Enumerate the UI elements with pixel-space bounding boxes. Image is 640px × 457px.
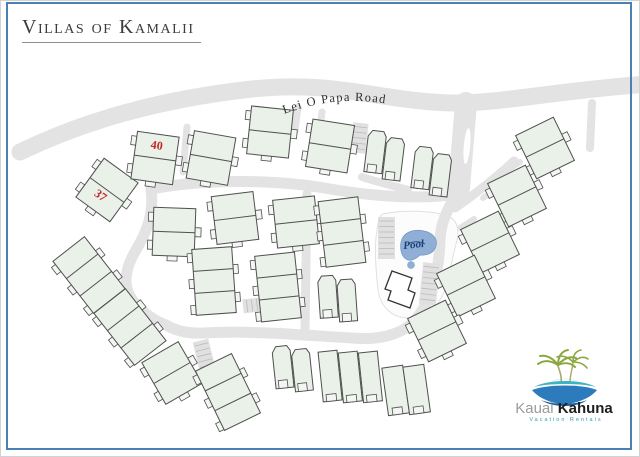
brand-tagline: Vacation Rentals xyxy=(529,417,602,423)
pool-spa xyxy=(408,262,415,269)
building xyxy=(268,195,326,253)
page-title: Villas of Kamalii xyxy=(22,16,201,43)
parking-stalls xyxy=(378,217,395,259)
building xyxy=(410,146,452,197)
kauai-kahuna-logo: Kauai Kahuna Vacation Rentals xyxy=(515,350,613,423)
palm-tree-icon xyxy=(538,350,588,383)
building xyxy=(272,343,314,394)
bottom-road xyxy=(166,325,352,338)
pool-label: Pool xyxy=(403,238,426,252)
driveway xyxy=(590,103,592,148)
building xyxy=(382,362,431,417)
unit-number-label: 40 xyxy=(150,137,164,153)
building xyxy=(300,118,361,179)
building xyxy=(317,274,357,323)
site-map: 3740 Lei O Papa Road Pool xyxy=(0,0,640,457)
site-map-page: 3740 Lei O Papa Road Pool xyxy=(0,0,640,457)
building xyxy=(206,191,265,250)
building xyxy=(313,196,371,268)
building xyxy=(318,346,382,407)
building xyxy=(363,130,405,181)
brand-name: Kauai Kahuna xyxy=(515,400,613,417)
building xyxy=(187,246,241,315)
